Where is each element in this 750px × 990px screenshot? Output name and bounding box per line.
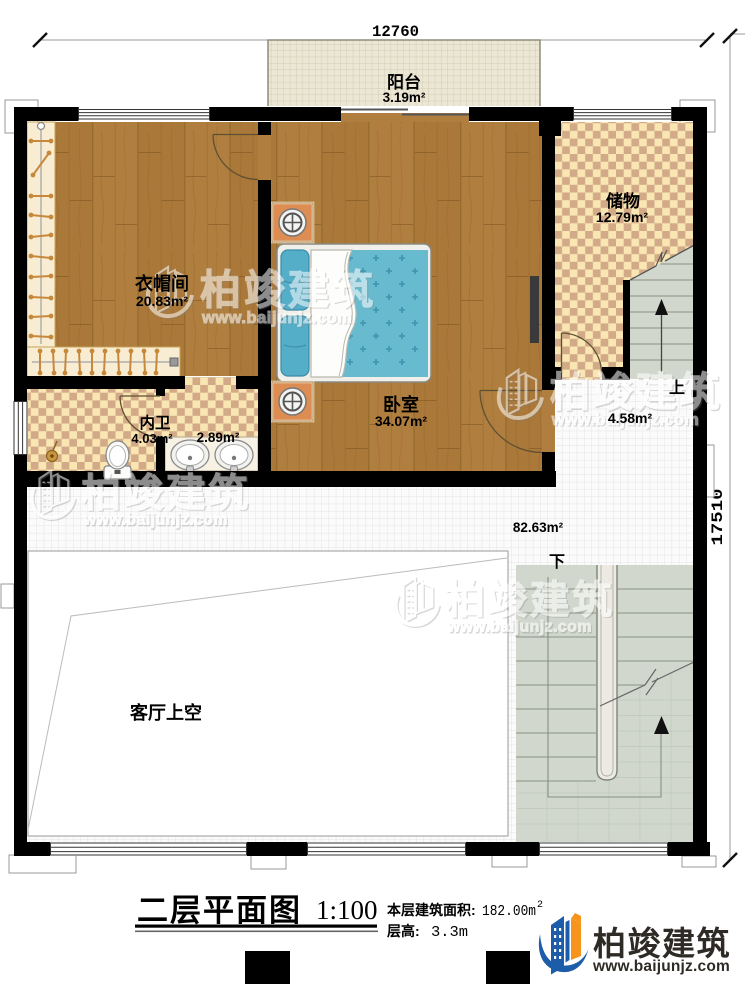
svg-text:卧室: 卧室 [383,394,419,415]
svg-text:12.79m²: 12.79m² [596,209,648,225]
svg-text:2.89m²: 2.89m² [197,430,240,445]
svg-text:上: 上 [669,379,685,397]
svg-text:12760: 12760 [372,23,419,41]
svg-text:柏竣建筑: 柏竣建筑 [593,925,731,962]
svg-text:本层建筑面积:: 本层建筑面积: [387,902,476,918]
svg-text:4.58m²: 4.58m² [608,410,653,426]
svg-text:82.63m²: 82.63m² [513,520,564,535]
svg-text:阳台: 阳台 [387,72,421,92]
svg-text:www.baijunjz.com: www.baijunjz.com [592,958,730,975]
svg-text:下: 下 [549,554,565,571]
svg-text:2: 2 [537,900,543,911]
svg-text:二层平面图: 二层平面图 [137,893,302,928]
svg-text:4.03m²: 4.03m² [131,431,173,446]
svg-text:182.00m: 182.00m [482,903,536,920]
svg-text:3.3m: 3.3m [431,924,468,941]
svg-text:层高:: 层高: [387,923,420,939]
svg-text:储物: 储物 [606,191,640,211]
svg-text:衣帽间: 衣帽间 [135,273,189,294]
svg-text:34.07m²: 34.07m² [375,413,427,429]
svg-text:内卫: 内卫 [139,413,171,432]
svg-text:20.83m²: 20.83m² [136,293,188,309]
svg-text:1:100: 1:100 [316,895,378,925]
svg-text:客厅上空: 客厅上空 [130,702,202,723]
svg-text:3.19m²: 3.19m² [383,90,426,105]
